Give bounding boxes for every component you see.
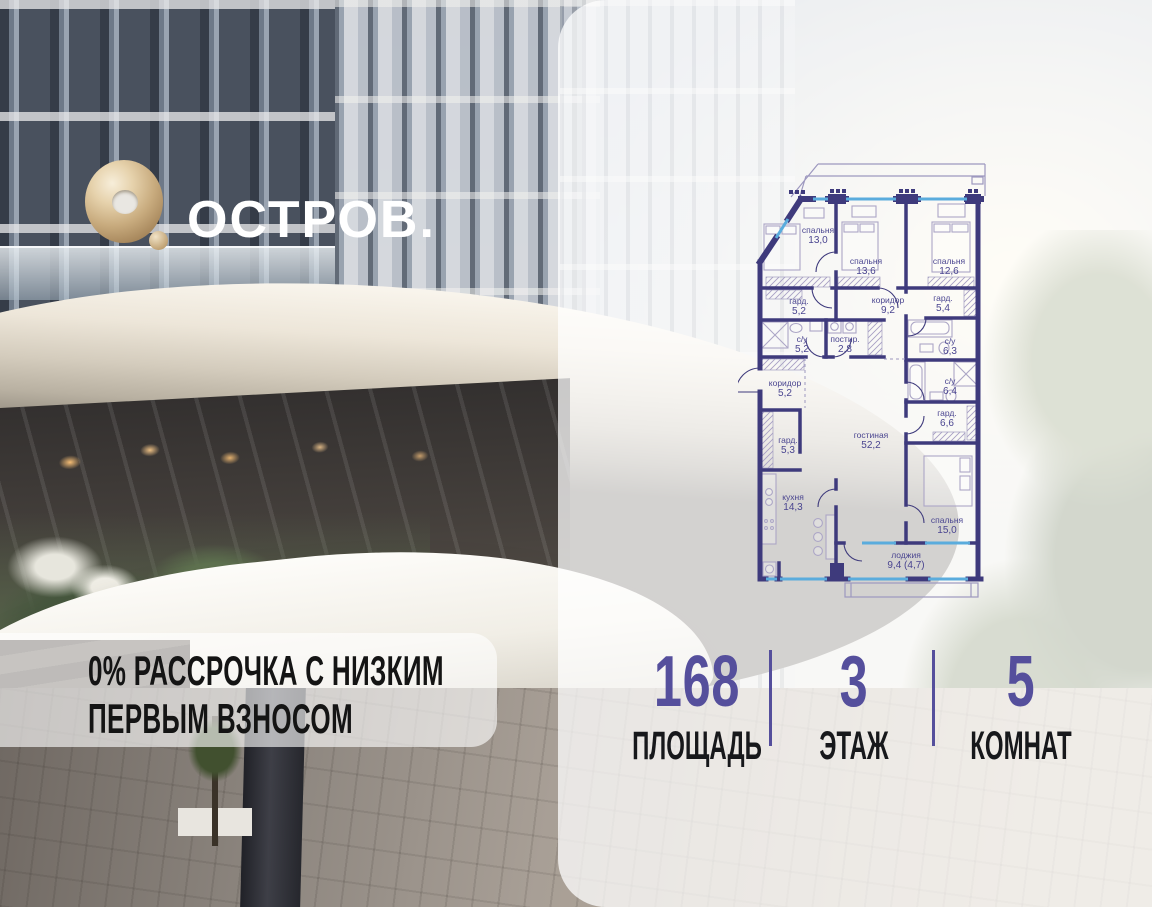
room-label: коридор5,2 (769, 378, 801, 400)
room-label: с/у5,2 (795, 334, 809, 356)
room-label: гард.5,2 (789, 296, 809, 318)
room-label: кухня14,3 (782, 492, 804, 514)
stats-bar: 168 ПЛОЩАДЬ 3 ЭТАЖ 5 КОМНАТ (558, 638, 1152, 768)
stat-rooms: 5 КОМНАТ (936, 646, 1105, 766)
promo-banner: 0% РАССРОЧКА С НИЗКИМ ПЕРВЫМ ВЗНОСОМ (0, 633, 497, 747)
logo: ОСТРОВ. (85, 160, 555, 250)
room-label: спальня13,0 (802, 225, 834, 247)
stat-area-label: ПЛОЩАДЬ (632, 726, 762, 766)
stats-divider (769, 650, 772, 746)
room-label: гостиная52,2 (854, 430, 889, 452)
room-label: коридор9,2 (872, 295, 904, 317)
room-label: спальня12,6 (933, 256, 965, 278)
room-label: гард.6,6 (937, 408, 957, 430)
stat-area-value: 168 (621, 646, 772, 718)
stat-area: 168 ПЛОЩАДЬ (589, 646, 805, 766)
room-label: гард.5,4 (933, 293, 953, 315)
stat-floor: 3 ЭТАЖ (796, 646, 911, 766)
logo-wordmark: ОСТРОВ. (187, 190, 436, 250)
promo-card: ОСТРОВ. 0% РАССРОЧКА С НИЗКИМ ПЕРВЫМ ВЗН… (0, 0, 1152, 907)
floor-plan: спальня13,0спальня13,6спальня12,6гард.5,… (738, 158, 994, 602)
room-label: спальня13,6 (850, 256, 882, 278)
stats-divider (932, 650, 935, 746)
room-label: спальня15,0 (931, 515, 963, 537)
room-label: постир.2,8 (830, 334, 859, 356)
room-labels: спальня13,0спальня13,6спальня12,6гард.5,… (738, 158, 994, 602)
stat-rooms-label: КОМНАТ (970, 726, 1071, 766)
stat-floor-label: ЭТАЖ (819, 726, 888, 766)
room-label: лоджия9,4 (4,7) (887, 550, 924, 572)
room-label: с/у6,4 (943, 376, 957, 398)
room-label: гард.5,3 (778, 435, 798, 457)
room-label: с/у6,3 (943, 336, 957, 358)
logo-ring-icon (85, 160, 163, 243)
stat-floor-value: 3 (814, 646, 895, 718)
banner-line-1: 0% РАССРОЧКА С НИЗКИМ (88, 647, 342, 695)
banner-line-2: ПЕРВЫМ ВЗНОСОМ (88, 695, 342, 743)
stat-rooms-value: 5 (962, 646, 1080, 718)
logo-dot-icon (149, 231, 168, 250)
